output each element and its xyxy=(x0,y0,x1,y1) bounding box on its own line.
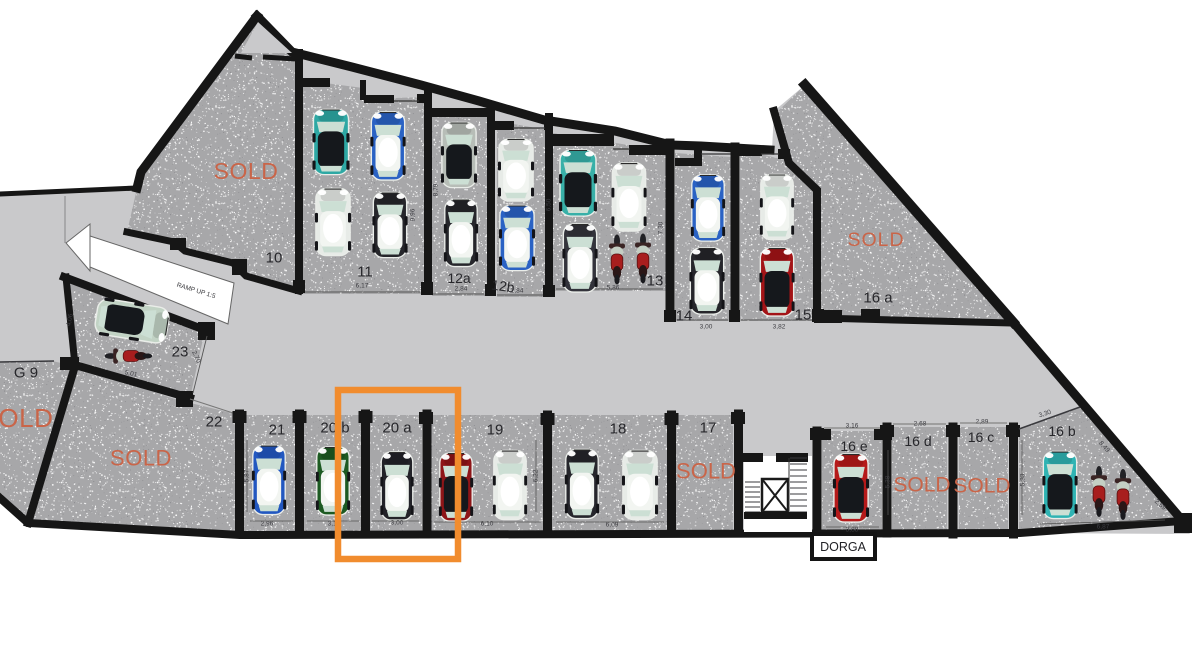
svg-text:16 e: 16 e xyxy=(840,438,867,454)
svg-text:2,89: 2,89 xyxy=(976,419,989,426)
svg-text:SOLD: SOLD xyxy=(676,459,736,484)
svg-text:6,10: 6,10 xyxy=(481,521,494,528)
svg-text:DORGA: DORGA xyxy=(820,540,867,554)
svg-text:13: 13 xyxy=(647,273,664,290)
svg-text:9,96: 9,96 xyxy=(410,208,417,221)
svg-text:3,00: 3,00 xyxy=(700,324,713,331)
svg-text:3,82: 3,82 xyxy=(773,324,786,331)
svg-text:5,33: 5,33 xyxy=(1020,473,1027,486)
svg-text:3,00: 3,00 xyxy=(391,520,404,527)
svg-text:2,84: 2,84 xyxy=(511,288,524,295)
svg-text:SOLD: SOLD xyxy=(893,474,950,497)
svg-text:8,79: 8,79 xyxy=(433,183,440,196)
svg-text:SOLD: SOLD xyxy=(214,158,279,184)
svg-text:2,84: 2,84 xyxy=(455,286,468,293)
svg-text:6,50: 6,50 xyxy=(546,198,553,211)
svg-text:20 a: 20 a xyxy=(382,420,412,437)
svg-text:16 b: 16 b xyxy=(1048,423,1075,439)
svg-text:14: 14 xyxy=(676,308,693,325)
svg-text:16 c: 16 c xyxy=(968,429,994,445)
svg-text:22: 22 xyxy=(206,414,223,431)
svg-text:2,96: 2,96 xyxy=(261,521,274,528)
svg-text:G 9: G 9 xyxy=(14,365,38,382)
svg-text:12a: 12a xyxy=(447,270,471,286)
svg-text:16 a: 16 a xyxy=(863,290,893,307)
svg-text:10: 10 xyxy=(266,250,283,267)
svg-text:SOLD: SOLD xyxy=(110,446,172,471)
svg-text:3,88: 3,88 xyxy=(846,527,859,534)
svg-text:21: 21 xyxy=(269,422,286,439)
svg-text:18: 18 xyxy=(610,421,627,438)
svg-text:SOLD: SOLD xyxy=(0,403,53,433)
svg-text:SOLD: SOLD xyxy=(847,229,904,251)
svg-text:6,17: 6,17 xyxy=(356,283,369,290)
svg-text:23: 23 xyxy=(172,344,189,361)
svg-text:3,16: 3,16 xyxy=(846,423,859,430)
svg-text:6,09: 6,09 xyxy=(606,522,619,529)
svg-text:11: 11 xyxy=(357,264,373,281)
svg-text:15: 15 xyxy=(795,307,812,324)
svg-text:5,86: 5,86 xyxy=(607,285,620,292)
svg-text:16 d: 16 d xyxy=(904,433,931,449)
svg-text:17: 17 xyxy=(700,420,717,437)
svg-text:7,30: 7,30 xyxy=(658,221,665,234)
svg-text:19: 19 xyxy=(487,422,504,439)
svg-text:6,87: 6,87 xyxy=(1097,524,1110,531)
svg-text:SOLD: SOLD xyxy=(953,475,1010,498)
